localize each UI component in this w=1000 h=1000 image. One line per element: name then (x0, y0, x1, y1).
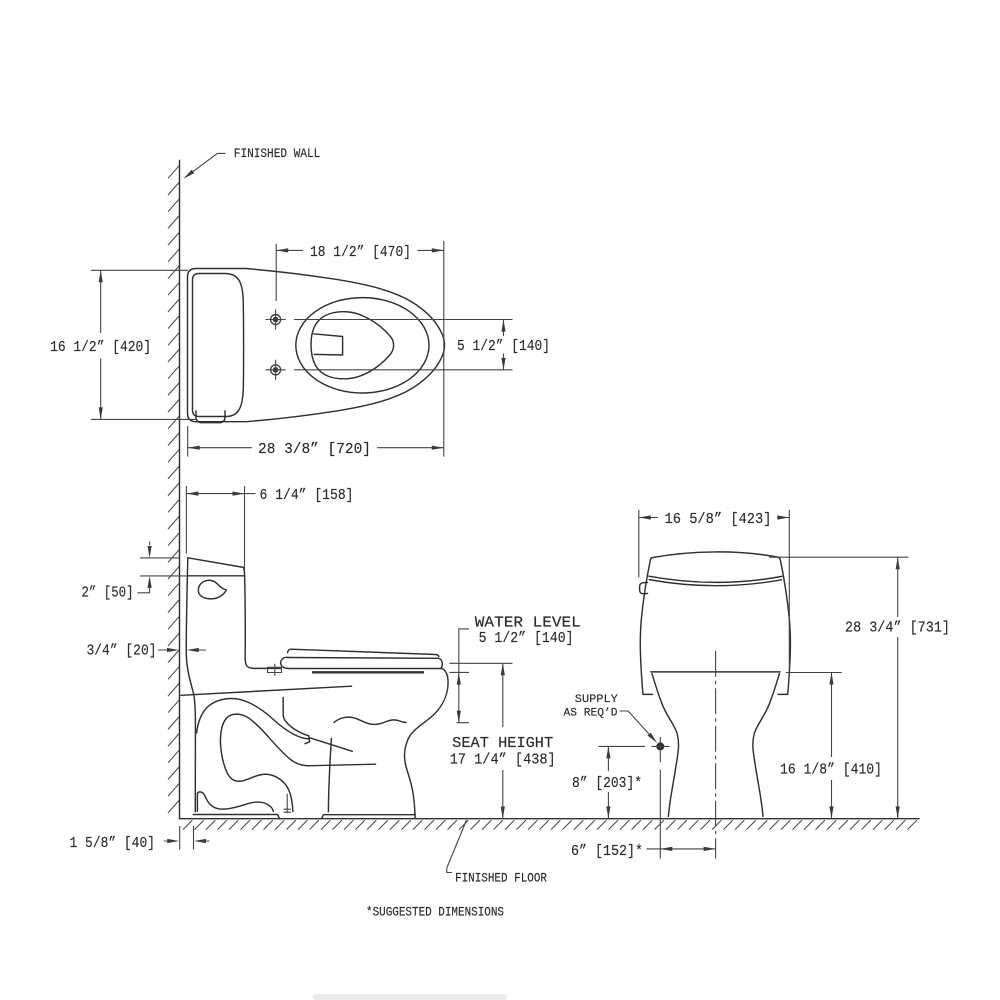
svg-text:5 1/2” [140]: 5 1/2” [140] (457, 338, 550, 355)
svg-text:SEAT HEIGHT: SEAT HEIGHT (452, 735, 553, 752)
svg-text:3/4” [20]: 3/4” [20] (87, 643, 157, 660)
svg-text:*SUGGESTED DIMENSIONS: *SUGGESTED DIMENSIONS (366, 906, 504, 920)
svg-text:6” [152]*: 6” [152]* (571, 843, 643, 860)
svg-text:FINISHED WALL: FINISHED WALL (234, 147, 320, 161)
svg-text:8” [203]*: 8” [203]* (572, 775, 642, 792)
svg-text:FINISHED FLOOR: FINISHED FLOOR (455, 872, 547, 886)
svg-text:1 5/8” [40]: 1 5/8” [40] (70, 835, 156, 852)
svg-text:6 1/4” [158]: 6 1/4” [158] (260, 487, 354, 504)
svg-text:18 1/2” [470]: 18 1/2” [470] (310, 244, 411, 261)
svg-text:AS REQ’D: AS REQ’D (564, 708, 618, 720)
svg-text:17 1/4” [438]: 17 1/4” [438] (450, 751, 556, 768)
svg-text:28 3/8” [720]: 28 3/8” [720] (258, 441, 371, 458)
svg-text:16 5/8” [423]: 16 5/8” [423] (665, 511, 772, 528)
svg-text:16 1/2” [420]: 16 1/2” [420] (50, 339, 151, 356)
svg-text:2” [50]: 2” [50] (82, 585, 134, 602)
svg-text:SUPPLY: SUPPLY (575, 694, 618, 706)
svg-text:16 1/8” [410]: 16 1/8” [410] (780, 761, 882, 778)
svg-text:28 3/4” [731]: 28 3/4” [731] (845, 619, 950, 636)
svg-text:5 1/2” [140]: 5 1/2” [140] (479, 630, 574, 647)
